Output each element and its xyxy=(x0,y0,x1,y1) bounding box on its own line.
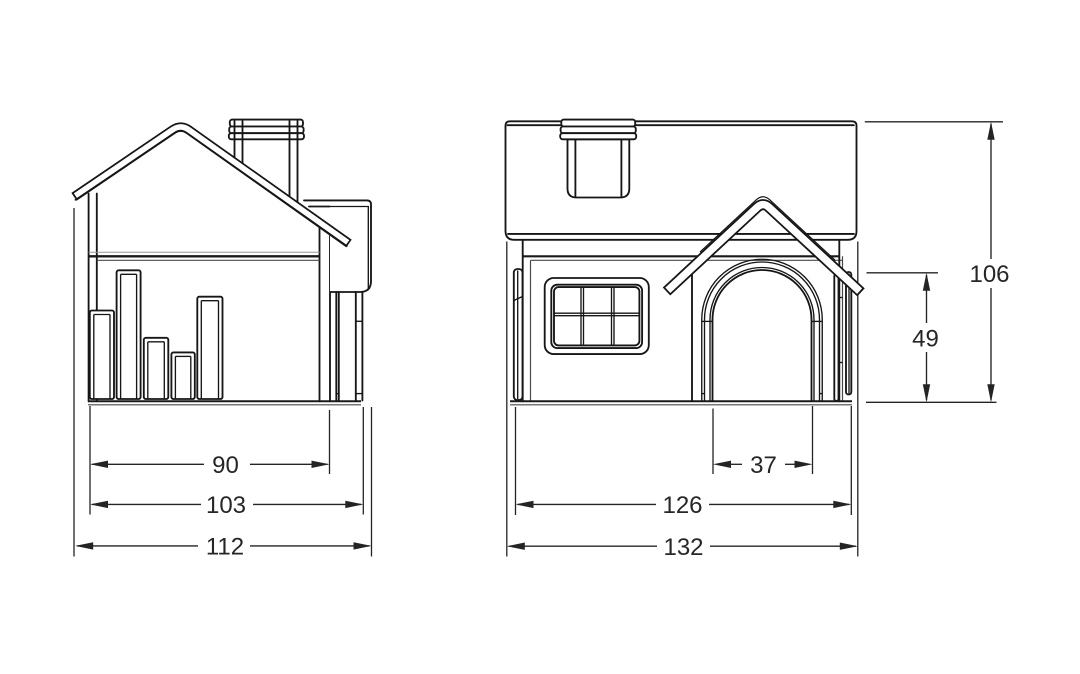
svg-text:112: 112 xyxy=(206,534,244,561)
svg-text:126: 126 xyxy=(662,492,702,519)
svg-text:106: 106 xyxy=(969,261,1009,288)
svg-text:103: 103 xyxy=(206,492,246,519)
svg-text:132: 132 xyxy=(663,534,703,561)
svg-text:90: 90 xyxy=(212,452,239,479)
svg-text:49: 49 xyxy=(912,326,939,353)
svg-text:37: 37 xyxy=(750,452,777,479)
